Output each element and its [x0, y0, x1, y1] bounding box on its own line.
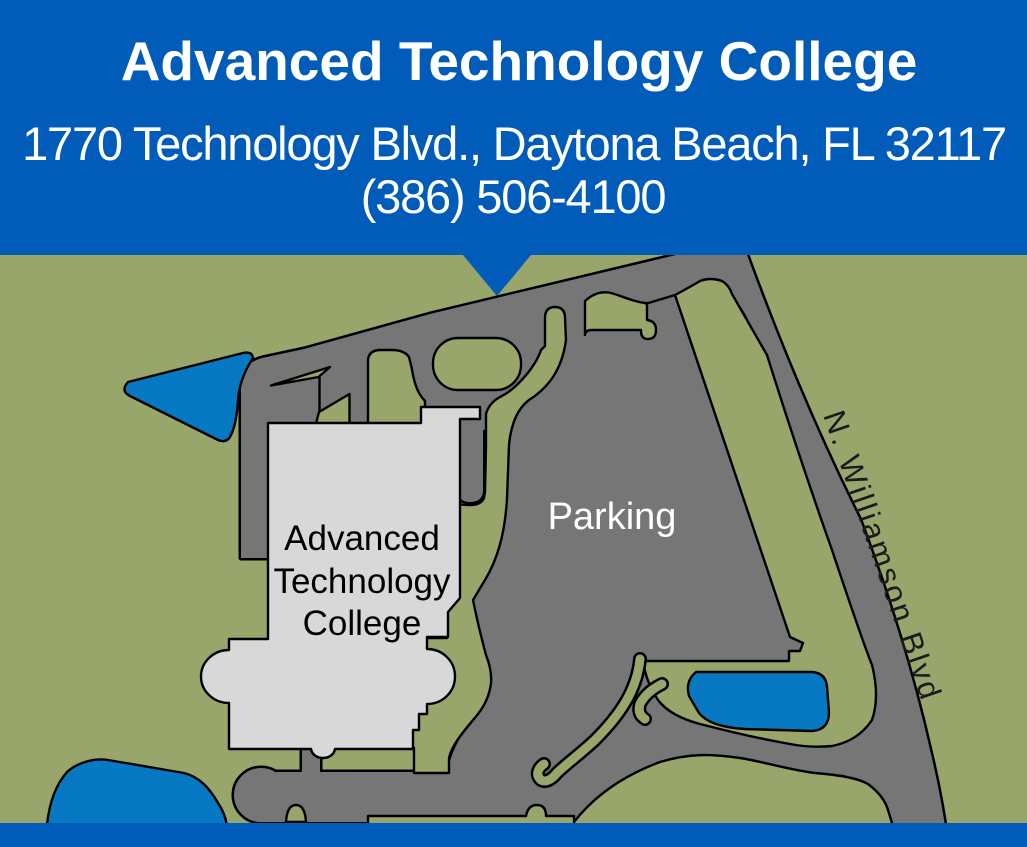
- svg-text:Advanced: Advanced: [284, 519, 440, 558]
- svg-text:Advanced Technology College: Advanced Technology College: [121, 30, 918, 92]
- svg-text:(386) 506-4100: (386) 506-4100: [361, 170, 666, 223]
- svg-text:1770 Technology Blvd., Daytona: 1770 Technology Blvd., Daytona Beach, FL…: [22, 117, 1006, 170]
- svg-text:Technology: Technology: [273, 562, 451, 601]
- svg-text:College: College: [303, 604, 422, 643]
- svg-text:Parking: Parking: [548, 496, 677, 538]
